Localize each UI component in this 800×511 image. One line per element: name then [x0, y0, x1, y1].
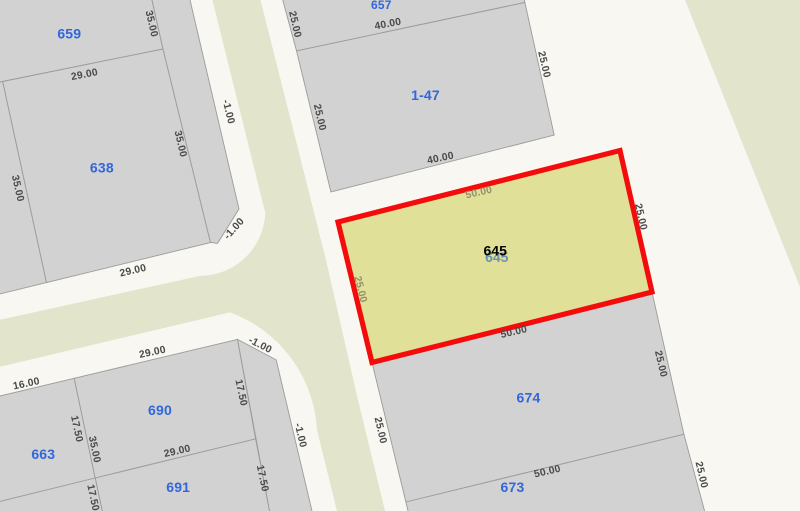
svg-text:690: 690 [148, 402, 172, 418]
svg-text:673: 673 [501, 479, 525, 495]
svg-text:645: 645 [484, 243, 508, 259]
svg-text:1-47: 1-47 [411, 87, 440, 103]
svg-text:674: 674 [517, 390, 541, 406]
svg-text:638: 638 [90, 160, 114, 176]
svg-text:657: 657 [371, 0, 392, 12]
svg-text:659: 659 [57, 25, 81, 41]
svg-text:691: 691 [166, 479, 190, 495]
svg-text:663: 663 [31, 446, 55, 462]
